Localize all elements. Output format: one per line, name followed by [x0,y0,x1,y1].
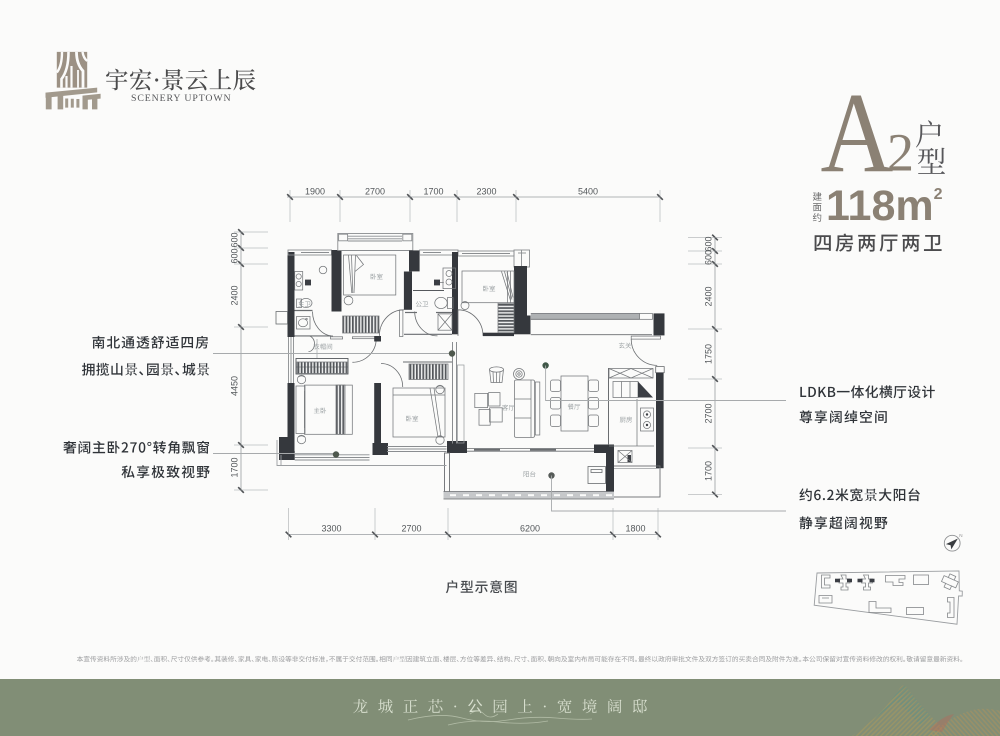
svg-text:5400: 5400 [578,187,598,197]
svg-text:1900: 1900 [305,187,325,197]
svg-text:A: A [821,70,894,196]
svg-text:2300: 2300 [476,187,496,197]
svg-text:3300: 3300 [321,524,341,534]
svg-text:118m2: 118m2 [826,182,943,230]
svg-text:2400: 2400 [704,286,714,306]
svg-text:1700: 1700 [423,187,443,197]
svg-text:2700: 2700 [401,524,421,534]
svg-text:2400: 2400 [230,285,240,305]
svg-text:2700: 2700 [365,187,385,197]
svg-text:600: 600 [704,236,714,251]
svg-text:1750: 1750 [704,344,714,364]
svg-text:4450: 4450 [230,376,240,396]
svg-text:1800: 1800 [625,524,645,534]
svg-text:1700: 1700 [704,461,714,481]
svg-text:600: 600 [704,250,714,265]
svg-text:600: 600 [230,248,240,263]
svg-text:1700: 1700 [230,457,240,477]
svg-text:2: 2 [887,123,914,183]
svg-text:N: N [959,533,962,538]
svg-text:600: 600 [230,232,240,247]
svg-text:6200: 6200 [520,524,540,534]
svg-text:SCENERY UPTOWN: SCENERY UPTOWN [131,93,232,104]
svg-text:2700: 2700 [704,403,714,423]
